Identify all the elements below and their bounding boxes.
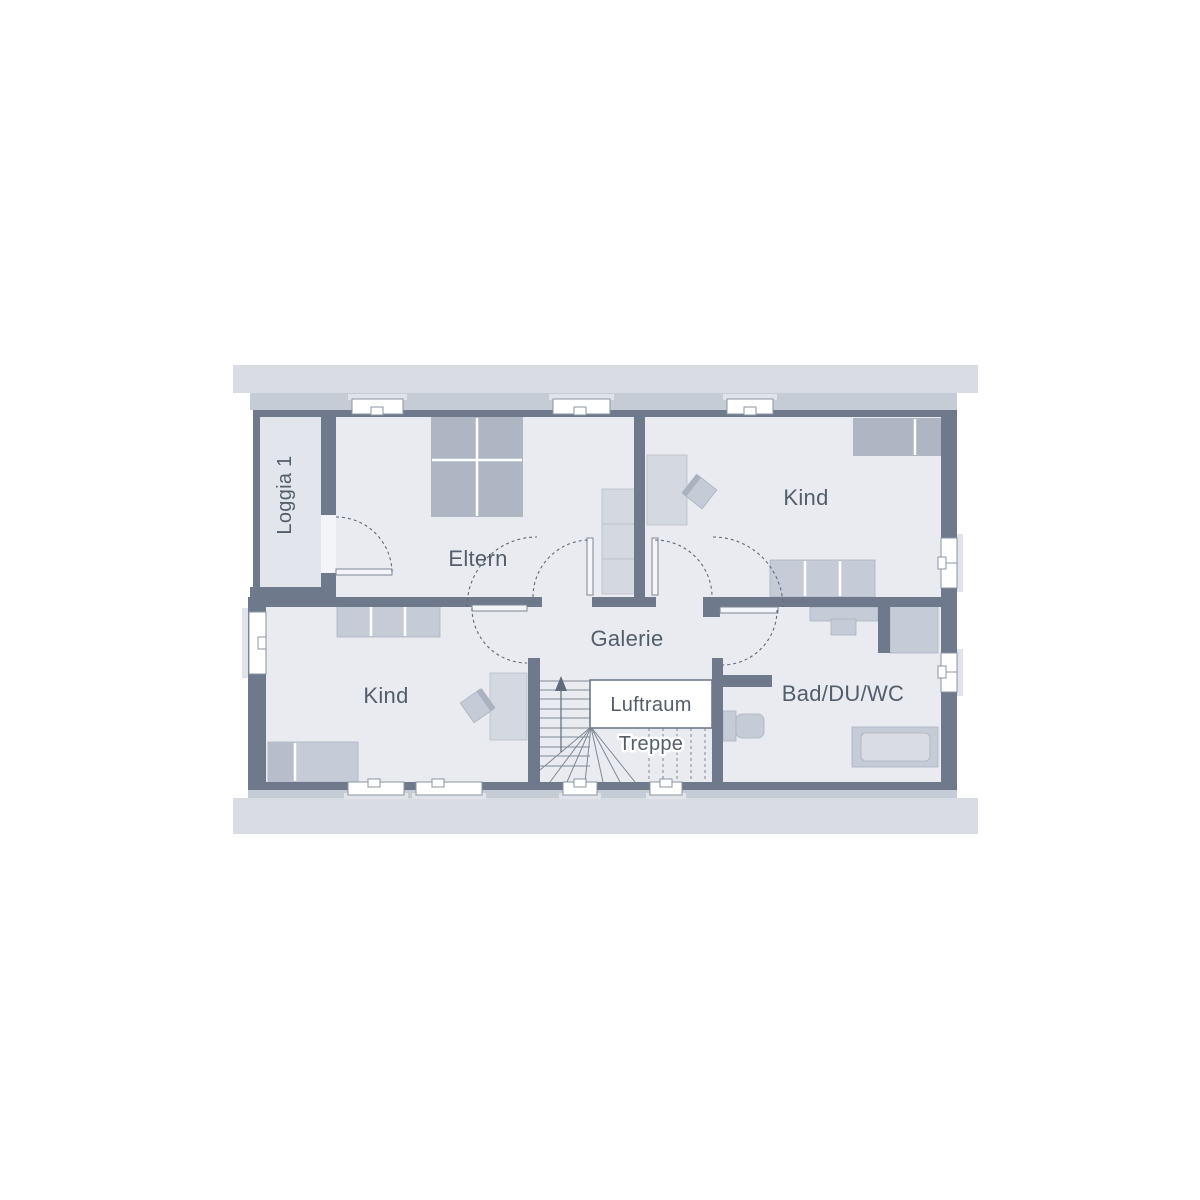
label-eltern: Eltern: [448, 546, 507, 571]
wardrobe: [770, 560, 875, 597]
toilet-tank: [723, 711, 736, 741]
wardrobe: [337, 605, 440, 637]
door-leaf: [336, 569, 392, 575]
bed: [853, 418, 941, 456]
label-kind-bottom: Kind: [363, 683, 408, 708]
bathtub-inner: [861, 733, 930, 761]
toilet-bowl: [736, 714, 764, 738]
door-leaf: [652, 538, 658, 595]
desk: [647, 455, 687, 525]
shelf: [602, 524, 635, 559]
label-treppe: Treppe: [619, 733, 683, 755]
floor-plan-drawing: Loggia 1 Eltern Kind Kind Galerie Luftra…: [0, 0, 1200, 1200]
desk: [490, 673, 527, 740]
label-loggia: Loggia 1: [274, 455, 296, 534]
door-leaf: [472, 605, 527, 611]
label-kind-top: Kind: [783, 485, 828, 510]
window: [416, 782, 482, 795]
door-leaf: [587, 538, 593, 595]
label-luftraum: Luftraum: [610, 694, 691, 716]
shelf: [602, 489, 635, 524]
door-leaf: [720, 607, 778, 613]
sink: [831, 619, 856, 635]
shelf: [602, 559, 635, 594]
floor-plan-page: Loggia 1 Eltern Kind Kind Galerie Luftra…: [0, 0, 1200, 1200]
door-opening: [321, 515, 336, 573]
label-galerie: Galerie: [590, 626, 663, 651]
shower: [890, 605, 938, 653]
label-bad: Bad/DU/WC: [782, 681, 905, 706]
